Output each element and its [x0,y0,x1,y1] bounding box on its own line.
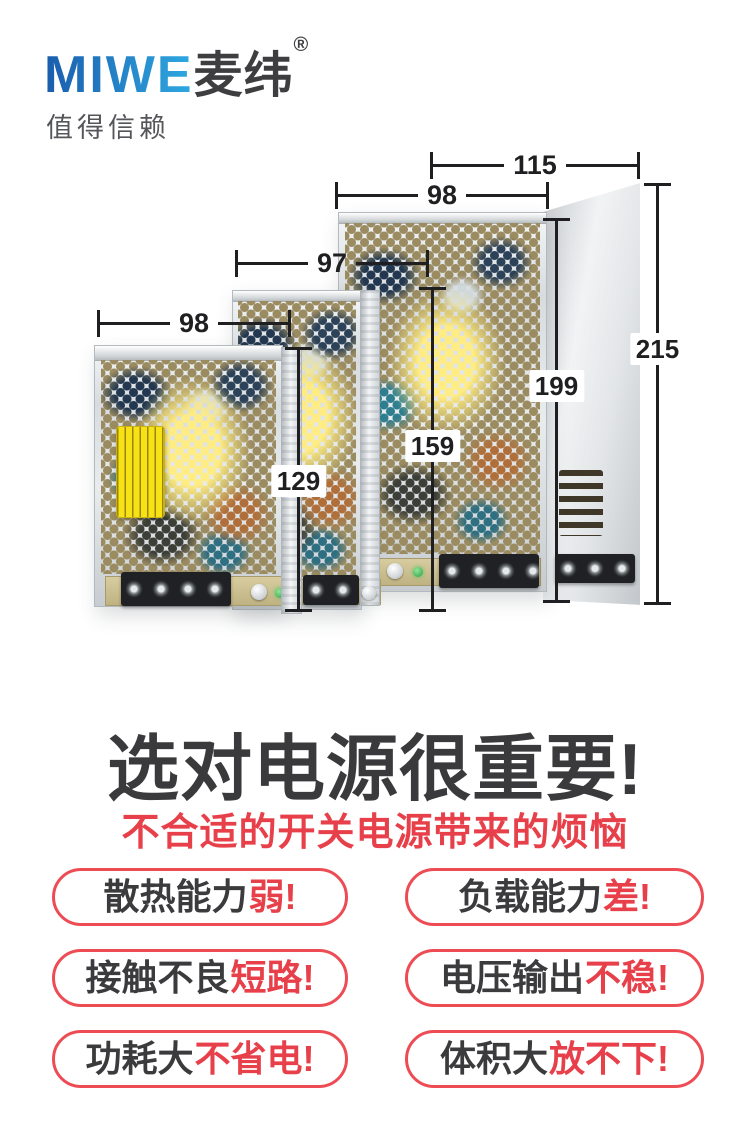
pain-point-label: 负载能力 [458,879,602,915]
pain-point-pill-heat: 散热能力弱! [52,868,348,926]
pain-point-label: 功耗大 [85,1041,193,1077]
pain-point-pill-contact: 接触不良短路! [52,949,348,1007]
pain-point-grid: 散热能力弱! 负载能力差! 接触不良短路! 电压输出不稳! 功耗大不省电! 体积… [52,868,704,1088]
pain-point-highlight: 短路! [231,960,315,996]
psu-top-edge [95,346,282,361]
pain-point-label: 体积大 [440,1041,548,1077]
terminal-block [303,575,359,605]
dim-width-98-left: 98 [97,310,291,337]
dim-height-215: 215 [656,183,659,605]
psu-medium-edge-strip [360,290,380,606]
dim-height-129: 129 [297,347,300,612]
pain-point-pill-voltage: 电压输出不稳! [405,949,704,1007]
pain-point-pill-load: 负载能力差! [405,868,704,926]
potentiometer [362,586,376,600]
terminal-block [121,572,231,606]
potentiometer [251,584,267,600]
warning-sticker [116,426,165,518]
pain-point-pill-power: 功耗大不省电! [52,1030,348,1088]
pain-point-label: 散热能力 [103,879,247,915]
pain-point-highlight: 放不下! [549,1041,669,1077]
page: MIWE麦纬® 值得信赖 [0,0,750,1140]
potentiometer [387,563,403,579]
dim-height-159: 159 [431,287,434,612]
psu-large [338,183,640,607]
dim-width-115: 115 [430,152,640,179]
led-indicator [413,567,423,577]
psu-small-face [94,345,283,607]
pain-point-highlight: 不省电! [195,1041,315,1077]
pain-point-highlight: 不稳! [585,960,669,996]
pain-point-pill-size: 体积大放不下! [405,1030,704,1088]
dim-label-98-top: 98 [418,182,466,209]
dim-height-199: 199 [555,218,558,603]
pain-point-highlight: 差! [603,879,651,915]
dim-label-129: 129 [271,465,326,497]
dim-label-199: 199 [529,370,584,402]
terminal-block [439,554,539,588]
dim-label-159: 159 [405,430,460,462]
dim-width-98-top: 98 [335,182,549,209]
pain-point-label: 电压输出 [440,960,584,996]
psu-small [94,345,300,612]
dim-label-98-left: 98 [170,310,218,337]
dim-label-215: 215 [630,333,685,365]
vent-slots [559,470,603,536]
pain-point-label: 接触不良 [85,960,229,996]
headline-subtitle: 不合适的开关电源带来的烦恼 [0,814,750,852]
pain-point-highlight: 弱! [249,879,297,915]
psu-large-side-terminal-block [555,554,635,583]
dim-label-97: 97 [308,250,356,277]
dim-label-115: 115 [504,152,566,179]
dim-width-97: 97 [235,250,429,277]
headline-title: 选对电源很重要! [0,734,750,806]
